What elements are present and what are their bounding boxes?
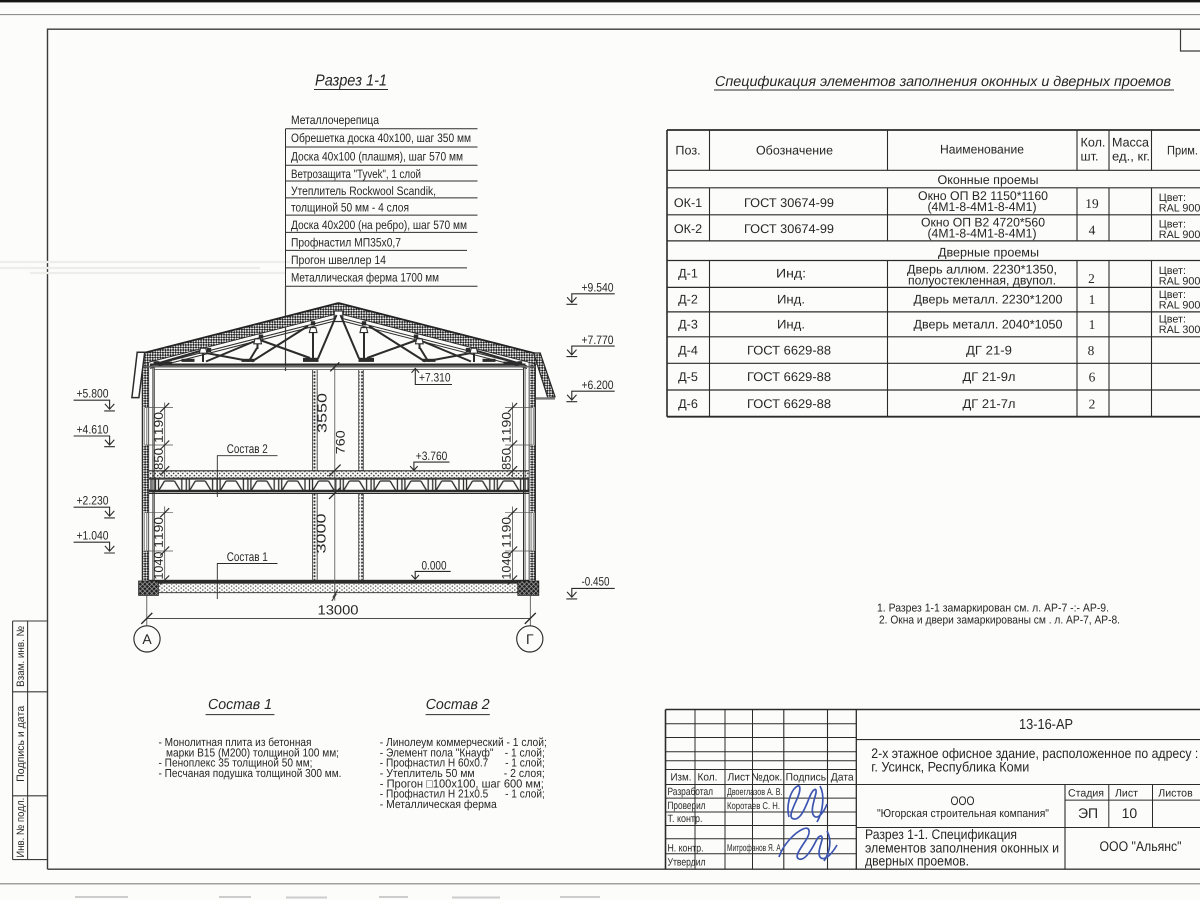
svg-text:Прим.: Прим.: [1167, 144, 1198, 158]
svg-text:Инд:: Инд:: [776, 267, 806, 281]
svg-text:ОК-2: ОК-2: [674, 222, 702, 236]
svg-text:Д-1: Д-1: [678, 267, 698, 281]
svg-text:дверных проемов.: дверных проемов.: [865, 854, 969, 869]
svg-text:RAL 9003: RAL 9003: [1159, 275, 1200, 287]
svg-text:Коротаев С. Н.: Коротаев С. Н.: [727, 801, 780, 812]
svg-text:ЭП: ЭП: [1078, 805, 1098, 821]
svg-text:1. Разрез 1-1 замаркирован см.: 1. Разрез 1-1 замаркирован см. л. АР-7 -…: [877, 603, 1109, 615]
svg-text:ГОСТ 6629-88: ГОСТ 6629-88: [747, 397, 831, 411]
svg-text:ДГ 21-9: ДГ 21-9: [966, 344, 1012, 358]
svg-text:Состав 2: Состав 2: [227, 442, 268, 456]
svg-text:Двоеглазов А. В.: Двоеглазов А. В.: [727, 787, 783, 798]
svg-text:+9.540: +9.540: [582, 281, 614, 295]
svg-text:4: 4: [1089, 222, 1096, 237]
svg-text:ед., кг.: ед., кг.: [1112, 150, 1150, 164]
svg-text:RAL 9003: RAL 9003: [1159, 300, 1200, 312]
svg-text:Изм.: Изм.: [671, 772, 692, 784]
svg-text:Прогон швеллер 14: Прогон швеллер 14: [291, 253, 386, 267]
svg-text:Разрез 1-1: Разрез 1-1: [315, 73, 387, 90]
svg-text:№док.: №док.: [751, 772, 782, 784]
svg-text:Инд.: Инд.: [777, 292, 805, 306]
svg-text:ОК-1: ОК-1: [674, 196, 702, 210]
svg-text:Д-2: Д-2: [678, 292, 698, 306]
svg-text:+1.040: +1.040: [77, 529, 109, 543]
svg-text:19: 19: [1085, 196, 1099, 211]
svg-text:Инд.: Инд.: [777, 318, 805, 332]
svg-text:полуостекленная, двупол.: полуостекленная, двупол.: [908, 273, 1056, 287]
svg-text:толщиной 50 мм - 4 слоя: толщиной 50 мм - 4 слоя: [291, 200, 409, 214]
svg-text:Состав 2: Состав 2: [426, 697, 490, 713]
svg-text:Поз.: Поз.: [675, 144, 700, 158]
svg-text:ДГ 21-7л: ДГ 21-7л: [963, 397, 1016, 411]
svg-text:Н. контр.: Н. контр.: [668, 842, 704, 854]
svg-text:г. Усинск, Республика Коми: г. Усинск, Республика Коми: [871, 759, 1029, 774]
svg-text:+7.310: +7.310: [419, 370, 451, 384]
svg-text:Д-6: Д-6: [678, 397, 698, 411]
svg-text:ГОСТ 6629-88: ГОСТ 6629-88: [747, 344, 831, 358]
svg-text:Д-4: Д-4: [678, 344, 698, 358]
svg-text:0.000: 0.000: [422, 559, 447, 573]
svg-text:Г: Г: [526, 631, 534, 647]
svg-text:"Югорская строительная компани: "Югорская строительная компания": [877, 808, 1049, 820]
svg-text:2: 2: [1089, 396, 1096, 411]
svg-text:Масса: Масса: [1112, 136, 1149, 150]
svg-text:Дверь металл. 2040*1050: Дверь металл. 2040*1050: [914, 318, 1063, 332]
svg-text:2: 2: [1088, 271, 1095, 286]
svg-text:6: 6: [1089, 370, 1096, 385]
svg-text:шт.: шт.: [1081, 150, 1099, 164]
svg-text:Дверные проемы: Дверные проемы: [938, 246, 1039, 260]
svg-text:- Металлическая ферма: - Металлическая ферма: [380, 798, 497, 811]
svg-text:Проверил: Проверил: [668, 800, 706, 812]
svg-text:13-16-АР: 13-16-АР: [1019, 717, 1073, 733]
svg-text:-0.450: -0.450: [582, 575, 610, 589]
svg-text:+4.610: +4.610: [77, 422, 109, 436]
svg-text:Лист: Лист: [1115, 788, 1138, 800]
svg-text:Ветрозащита "Tyvek", 1 слой: Ветрозащита "Tyvek", 1 слой: [291, 167, 421, 181]
svg-text:Стадия: Стадия: [1068, 788, 1104, 800]
svg-text:+6.200: +6.200: [582, 378, 614, 392]
svg-text:13000: 13000: [318, 603, 359, 618]
svg-text:Утвердил: Утвердил: [668, 857, 706, 869]
svg-text:8: 8: [1088, 343, 1095, 358]
svg-text:(4М1-8-4М1-8-4М1): (4М1-8-4М1-8-4М1): [928, 200, 1037, 214]
svg-text:Разработал: Разработал: [668, 786, 714, 798]
svg-text:Состав 1: Состав 1: [227, 550, 268, 564]
svg-text:Лист: Лист: [727, 772, 750, 784]
svg-text:10: 10: [1122, 805, 1138, 821]
svg-text:- Песчаная подушка толщиной 30: - Песчаная подушка толщиной 300 мм.: [159, 767, 342, 780]
svg-text:+7.770: +7.770: [582, 333, 614, 347]
svg-text:Наименование: Наименование: [940, 143, 1024, 157]
svg-text:+2.230: +2.230: [77, 494, 109, 508]
svg-text:Состав 1: Состав 1: [208, 697, 272, 713]
svg-text:Оконные проемы: Оконные проемы: [938, 173, 1039, 187]
svg-text:ООО "Альянс": ООО "Альянс": [1100, 838, 1182, 854]
svg-text:+3.760: +3.760: [416, 449, 448, 463]
svg-text:Кол.: Кол.: [698, 772, 718, 784]
svg-text:Листов: Листов: [1158, 788, 1193, 800]
svg-text:Утеплитель Rockwool Scandik,: Утеплитель Rockwool Scandik,: [291, 184, 436, 198]
svg-text:Металлочерепица: Металлочерепица: [291, 113, 379, 127]
svg-text:Металлическая ферма 1700 мм: Металлическая ферма 1700 мм: [291, 271, 439, 285]
svg-text:ГОСТ 6629-88: ГОСТ 6629-88: [747, 370, 831, 384]
svg-text:1: 1: [1089, 292, 1096, 307]
svg-text:RAL 9003: RAL 9003: [1159, 203, 1200, 215]
svg-text:ДГ 21-9л: ДГ 21-9л: [963, 370, 1016, 384]
svg-text:Т. контр.: Т. контр.: [668, 813, 703, 825]
svg-text:Д-5: Д-5: [678, 370, 698, 384]
svg-text:Доска 40х200 (на ребро), шаг 5: Доска 40х200 (на ребро), шаг 570 мм: [291, 218, 467, 232]
svg-text:Спецификация элементов заполне: Спецификация элементов заполнения оконны…: [715, 74, 1171, 90]
svg-text:2. Окна и двери замаркированы: 2. Окна и двери замаркированы см . л. АР…: [879, 615, 1120, 627]
svg-text:RAL 9003: RAL 9003: [1159, 229, 1200, 241]
svg-text:Дверь металл. 2230*1200: Дверь металл. 2230*1200: [914, 292, 1063, 306]
svg-text:А: А: [142, 631, 152, 647]
svg-text:Профнастил МП35х0,7: Профнастил МП35х0,7: [291, 236, 401, 250]
svg-text:Обрешетка доска 40х100, шаг 35: Обрешетка доска 40х100, шаг 350 мм: [291, 131, 471, 145]
svg-text:ГОСТ 30674-99: ГОСТ 30674-99: [744, 196, 834, 210]
svg-text:Обозначение: Обозначение: [756, 144, 833, 158]
svg-text:Дата: Дата: [831, 772, 854, 784]
svg-text:Подпись: Подпись: [786, 772, 827, 784]
svg-text:Митрофанов Я. А.: Митрофанов Я. А.: [727, 843, 783, 854]
svg-text:ГОСТ 30674-99: ГОСТ 30674-99: [744, 222, 834, 236]
svg-text:1: 1: [1089, 317, 1096, 332]
svg-text:RAL 3003: RAL 3003: [1159, 324, 1200, 336]
svg-text:ООО: ООО: [951, 794, 975, 808]
svg-text:+5.800: +5.800: [77, 386, 109, 400]
svg-text:Д-3: Д-3: [678, 318, 698, 332]
svg-text:(4М1-8-4М1-8-4М1): (4М1-8-4М1-8-4М1): [928, 227, 1037, 241]
svg-text:Доска 40х100 (плашмя), шаг 570: Доска 40х100 (плашмя), шаг 570 мм: [291, 150, 463, 164]
svg-text:Кол.: Кол.: [1081, 136, 1106, 150]
